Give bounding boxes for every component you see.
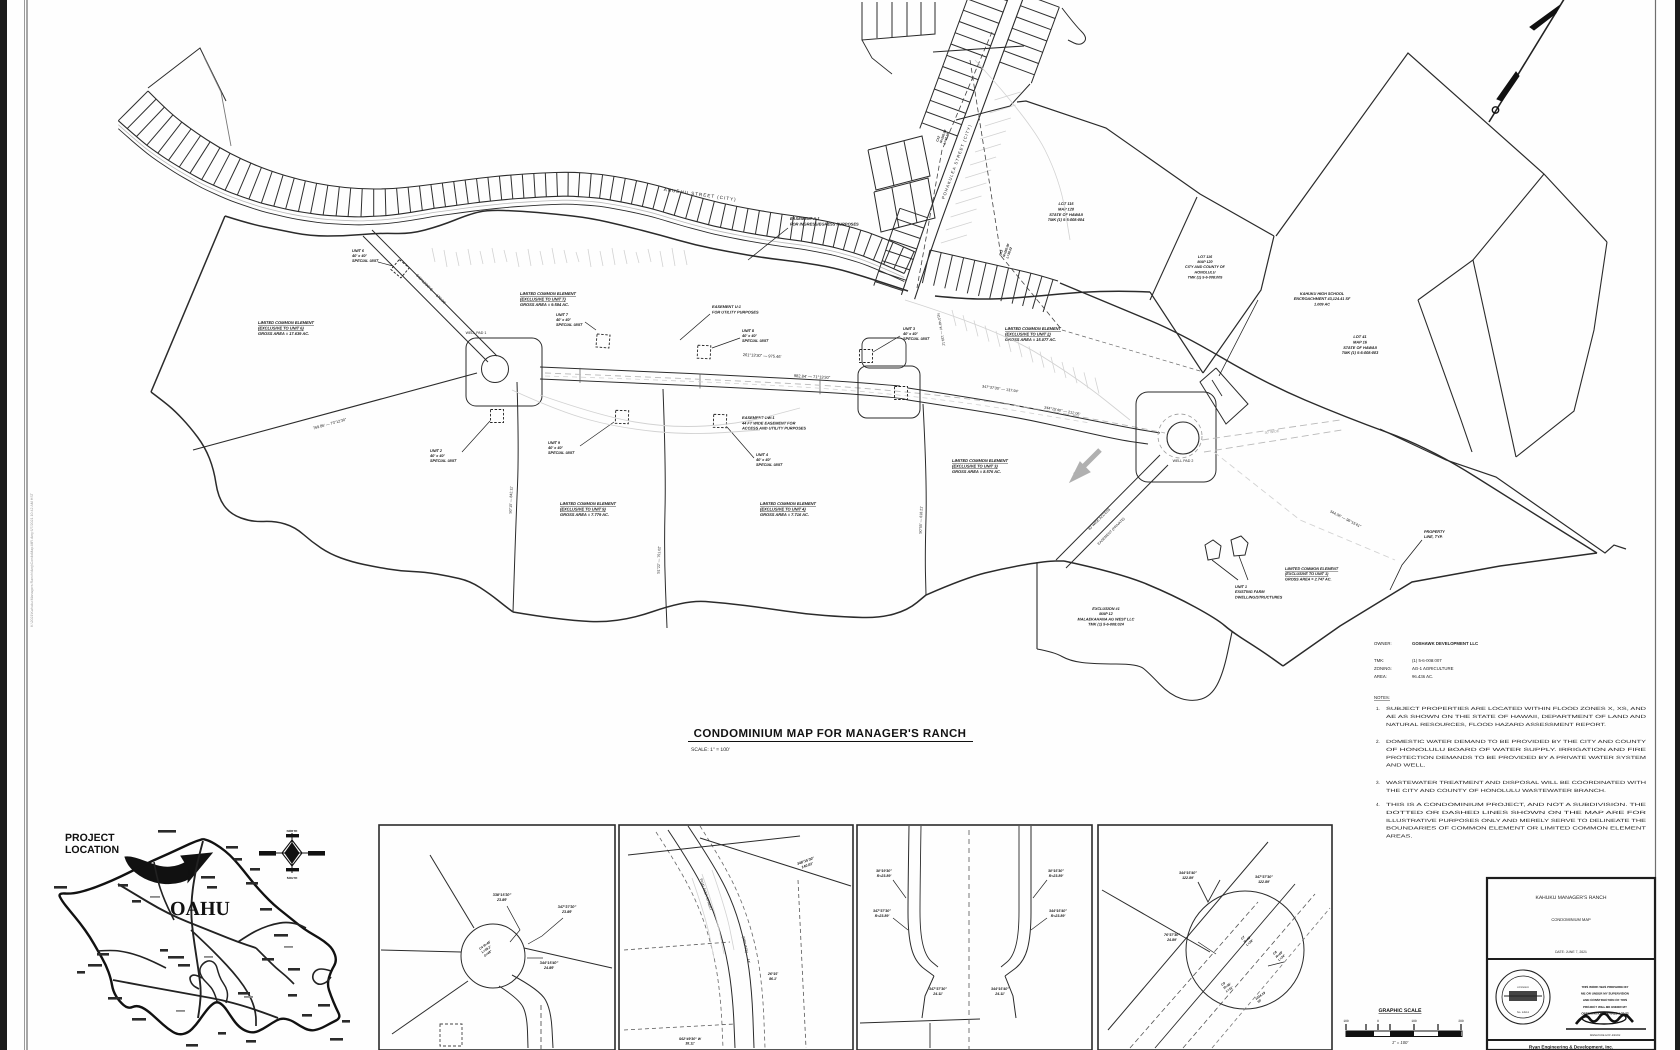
svg-text:24.11': 24.11'	[932, 992, 943, 996]
svg-text:UNIT 6: UNIT 6	[352, 249, 365, 253]
svg-text:SPECIAL UNIT: SPECIAL UNIT	[556, 323, 583, 327]
svg-text:TMK:: TMK:	[1374, 658, 1384, 663]
svg-text:MALAEKAHANA AG WEST LLC: MALAEKAHANA AG WEST LLC	[1078, 617, 1135, 621]
svg-text:38.11': 38.11'	[685, 1042, 694, 1046]
svg-text:OAHU: OAHU	[170, 898, 230, 920]
svg-text:GROSS AREA = 2.747 AC.: GROSS AREA = 2.747 AC.	[1285, 577, 1332, 581]
svg-text:347°37'30": 347°37'30"	[873, 909, 891, 913]
svg-text:WELL PAD 1: WELL PAD 1	[466, 331, 487, 335]
svg-text:344°15'40": 344°15'40"	[1179, 871, 1197, 875]
svg-text:96.436 AC.: 96.436 AC.	[1412, 674, 1433, 679]
svg-text:40' x 40': 40' x 40'	[902, 332, 918, 336]
svg-text:KAHUKU MANAGER'S RANCH: KAHUKU MANAGER'S RANCH	[1536, 895, 1607, 901]
svg-text:SCALE: 1" = 100': SCALE: 1" = 100'	[691, 747, 730, 753]
svg-text:ME OR UNDER MY SUPERVISION: ME OR UNDER MY SUPERVISION	[1581, 992, 1629, 996]
svg-text:24.11': 24.11'	[994, 992, 1005, 996]
svg-text:122.89': 122.89'	[1182, 876, 1194, 880]
svg-text:R=23.89': R=23.89'	[1051, 914, 1066, 918]
svg-text:(EXCLUSIVE TO UNIT 2): (EXCLUSIVE TO UNIT 2)	[1005, 332, 1051, 337]
svg-text:CONDOMINIUM MAP FOR MANAGER: CONDOMINIUM MAP FOR MANAGER'S RANCH	[694, 728, 967, 740]
svg-text:LINE, TYP.: LINE, TYP.	[1424, 535, 1443, 539]
svg-text:1.009 AC: 1.009 AC	[1314, 302, 1330, 306]
svg-text:ILLUSTRATIVE PURPOSES ONLY AND: ILLUSTRATIVE PURPOSES ONLY AND MERELY SE…	[1386, 818, 1646, 823]
svg-text:338°15'30": 338°15'30"	[493, 893, 512, 897]
svg-text:MAP 120: MAP 120	[1058, 206, 1075, 211]
svg-text:CONDOMINIUM MAP: CONDOMINIUM MAP	[1551, 917, 1591, 922]
svg-text:(1) 5-6-008:007: (1) 5-6-008:007	[1412, 658, 1442, 663]
svg-text:(EXCLUSIVE TO UNIT 6): (EXCLUSIVE TO UNIT 6)	[258, 326, 304, 331]
svg-text:UNIT 4: UNIT 4	[756, 453, 769, 457]
svg-text:R=23.89': R=23.89'	[875, 914, 890, 918]
svg-text:TMK (1) 5-6-008:003: TMK (1) 5-6-008:003	[1342, 350, 1379, 355]
svg-text:100: 100	[1343, 1019, 1349, 1023]
svg-text:(EXCLUSIVE TO UNIT 4): (EXCLUSIVE TO UNIT 4)	[760, 507, 806, 512]
svg-text:LOCATION: LOCATION	[65, 844, 119, 856]
svg-text:344°15'40": 344°15'40"	[991, 987, 1009, 991]
svg-text:LOT 115: LOT 115	[1058, 201, 1074, 206]
svg-text:SPECIAL UNIT: SPECIAL UNIT	[756, 463, 783, 467]
svg-text:FOR UTILITY PURPOSES: FOR UTILITY PURPOSES	[712, 309, 759, 314]
svg-text:GROSS AREA = 7.779 AC.: GROSS AREA = 7.779 AC.	[560, 512, 609, 517]
svg-text:23.89': 23.89'	[561, 910, 572, 914]
svg-text:DOMESTIC WATER DEMAND TO BE PR: DOMESTIC WATER DEMAND TO BE PROVIDED BY …	[1386, 739, 1646, 744]
svg-text:SUBJECT PROPERTIES ARE LOCATED: SUBJECT PROPERTIES ARE LOCATED WITHIN FL…	[1386, 706, 1647, 711]
svg-text:347°37'30": 347°37'30"	[558, 905, 577, 909]
svg-text:GROSS AREA = 7.716 AC.: GROSS AREA = 7.716 AC.	[760, 512, 809, 517]
svg-text:30°19'30": 30°19'30"	[876, 869, 892, 873]
svg-text:LIMITED COMMON ELEMENT: LIMITED COMMON ELEMENT	[258, 320, 315, 325]
svg-text:AND WELL.: AND WELL.	[1386, 763, 1426, 768]
svg-text:344°15'40": 344°15'40"	[1049, 909, 1067, 913]
svg-text:SPECIAL UNIT: SPECIAL UNIT	[903, 337, 930, 341]
svg-text:LOT 116: LOT 116	[1198, 255, 1213, 259]
svg-text:WASTEWATER TREATMENT AND DISPO: WASTEWATER TREATMENT AND DISPOSAL WILL B…	[1386, 780, 1646, 785]
svg-text:40' x 40': 40' x 40'	[547, 446, 563, 450]
svg-text:(EXCLUSIVE TO UNIT 9): (EXCLUSIVE TO UNIT 9)	[560, 507, 606, 512]
svg-text:PROJECT WILL BE UNDER MY: PROJECT WILL BE UNDER MY	[1583, 1005, 1627, 1009]
svg-text:24.89': 24.89'	[1166, 938, 1177, 942]
svg-text:24.89': 24.89'	[543, 966, 554, 970]
svg-text:FOR INGRESS/EGRESS PURPOSES: FOR INGRESS/EGRESS PURPOSES	[790, 221, 859, 226]
svg-text:AND CONSTRUCTION OF THIS: AND CONSTRUCTION OF THIS	[1583, 998, 1627, 1002]
svg-text:UNIT 9: UNIT 9	[548, 441, 561, 445]
svg-text:LIMITED COMMON ELEMENT: LIMITED COMMON ELEMENT	[1005, 326, 1062, 331]
svg-text:PROPERTY: PROPERTY	[1424, 530, 1445, 534]
svg-text:AREA:: AREA:	[1374, 674, 1387, 679]
svg-text:Ryan Engineering & Development: Ryan Engineering & Development, Inc.	[1529, 1045, 1613, 1050]
svg-text:40' x 40': 40' x 40'	[429, 454, 445, 458]
svg-text:1.: 1.	[1376, 706, 1380, 711]
svg-text:SPECIAL UNIT: SPECIAL UNIT	[430, 459, 457, 463]
svg-text:EASEMENT U-1: EASEMENT U-1	[712, 304, 741, 309]
svg-text:ENCROACHMENT 43,124.41 SF: ENCROACHMENT 43,124.41 SF	[1294, 297, 1351, 301]
svg-text:GROSS AREA = 15.077 AC.: GROSS AREA = 15.077 AC.	[1005, 337, 1056, 342]
svg-text:HONOLULU: HONOLULU	[1195, 270, 1216, 274]
svg-text:AE AS SHOWN ON THE STATE OF HA: AE AS SHOWN ON THE STATE OF HAWAII, DEPA…	[1386, 714, 1647, 719]
svg-text:347°37'30": 347°37'30"	[929, 987, 947, 991]
svg-text:4.: 4.	[1376, 802, 1380, 807]
svg-text:TMK (1) 5-6-008:024: TMK (1) 5-6-008:024	[1088, 623, 1125, 627]
svg-text:76°37'30": 76°37'30"	[1164, 933, 1180, 937]
svg-text:LIMITED COMMON ELEMENT: LIMITED COMMON ELEMENT	[952, 458, 1009, 463]
svg-text:THE CITY AND COUNTY OF HONOLUL: THE CITY AND COUNTY OF HONOLULU WASTEWAT…	[1386, 788, 1606, 793]
svg-text:DOTTED OR DASHED LINES SHOWN O: DOTTED OR DASHED LINES SHOWN ON THE MAP …	[1386, 810, 1647, 815]
svg-text:2.: 2.	[1376, 739, 1380, 744]
svg-text:AREAS.: AREAS.	[1386, 834, 1412, 839]
svg-text:MAP 16: MAP 16	[1353, 339, 1368, 344]
svg-text:TMK (1) 5-6-008:005: TMK (1) 5-6-008:005	[1188, 275, 1224, 279]
svg-text:86.1': 86.1'	[769, 977, 777, 981]
svg-text:GROSS AREA = 9.584 AC.: GROSS AREA = 9.584 AC.	[520, 302, 569, 307]
svg-text:LICENSED: LICENSED	[1517, 986, 1529, 989]
svg-text:THIS IS A CONDOMINIUM PROJECT,: THIS IS A CONDOMINIUM PROJECT, AND NOT A…	[1386, 802, 1646, 807]
svg-text:(EXCLUSIVE TO UNIT 7): (EXCLUSIVE TO UNIT 7)	[520, 297, 566, 302]
svg-text:26°15': 26°15'	[767, 972, 778, 976]
svg-text:LOT 41: LOT 41	[1353, 334, 1366, 339]
svg-text:K:\2021\Kahuku Managers Ranch\: K:\2021\Kahuku Managers Ranch\dwg\CondoM…	[30, 492, 34, 627]
svg-text:40' x 40': 40' x 40'	[755, 458, 771, 462]
svg-text:BOUNDARIES OF COMMON ELEMENT O: BOUNDARIES OF COMMON ELEMENT OR LIMITED …	[1386, 826, 1646, 831]
svg-text:347°37'30": 347°37'30"	[1255, 875, 1273, 879]
svg-text:344°15'40": 344°15'40"	[540, 961, 559, 965]
svg-text:No. 14513: No. 14513	[1517, 1011, 1530, 1014]
svg-text:UNIT 1: UNIT 1	[1235, 585, 1247, 589]
svg-text:23.89': 23.89'	[496, 898, 507, 902]
svg-text:200: 200	[1458, 1019, 1464, 1023]
svg-text:CITY AND COUNTY OF: CITY AND COUNTY OF	[1185, 265, 1226, 269]
svg-text:3.: 3.	[1376, 780, 1380, 785]
svg-text:S62°49'30" W: S62°49'30" W	[679, 1037, 702, 1041]
svg-text:(EXCLUSIVE TO UNIT 1): (EXCLUSIVE TO UNIT 1)	[1285, 572, 1329, 576]
svg-text:EXCLUSION #1: EXCLUSION #1	[1092, 607, 1119, 611]
svg-text:DWELLING/STRUCTURES: DWELLING/STRUCTURES	[1235, 595, 1283, 599]
svg-text:GROSS AREA = 17.639 AC.: GROSS AREA = 17.639 AC.	[258, 331, 309, 336]
svg-text:SPECIAL UNIT: SPECIAL UNIT	[352, 259, 379, 263]
svg-text:PROTECTION DEMANDS TO BE PROVI: PROTECTION DEMANDS TO BE PROVIDED BY A P…	[1386, 755, 1646, 760]
svg-text:WELL PAD 2: WELL PAD 2	[1173, 459, 1194, 463]
svg-text:UNIT 3: UNIT 3	[903, 327, 916, 331]
svg-text:LIMITED COMMON ELEMENT: LIMITED COMMON ELEMENT	[760, 501, 817, 506]
svg-text:AG-1 AGRICULTURE: AG-1 AGRICULTURE	[1412, 666, 1454, 671]
svg-text:1" = 100': 1" = 100'	[1392, 1040, 1409, 1045]
svg-text:30°15'30": 30°15'30"	[1048, 869, 1064, 873]
svg-text:OWNER:: OWNER:	[1374, 641, 1392, 646]
svg-text:(EXCLUSIVE TO UNIT 3): (EXCLUSIVE TO UNIT 3)	[952, 464, 998, 469]
svg-text:NOTES:: NOTES:	[1374, 695, 1390, 700]
svg-text:40' x 40': 40' x 40'	[555, 318, 571, 322]
svg-text:GROSS AREA = 8.576 AC.: GROSS AREA = 8.576 AC.	[952, 469, 1001, 474]
svg-text:GOSHAWK DEVELOPMENT LLC: GOSHAWK DEVELOPMENT LLC	[1412, 641, 1478, 646]
svg-text:SIGNATURE EXP. 4/30/22: SIGNATURE EXP. 4/30/22	[1590, 1034, 1621, 1037]
svg-text:MAP 12: MAP 12	[1099, 612, 1113, 616]
svg-text:EXISTING FARM: EXISTING FARM	[1235, 590, 1265, 594]
svg-text:GRAPHIC SCALE: GRAPHIC SCALE	[1379, 1008, 1422, 1014]
svg-text:LIMITED COMMON ELEMENT: LIMITED COMMON ELEMENT	[520, 291, 577, 296]
svg-text:40' x 40': 40' x 40'	[351, 254, 367, 258]
svg-text:UNIT 8: UNIT 8	[742, 329, 755, 333]
svg-text:OF HONOLULU BOARD OF WATER SUP: OF HONOLULU BOARD OF WATER SUPPLY. IRRIG…	[1386, 747, 1646, 752]
svg-text:SPECIAL UNIT: SPECIAL UNIT	[548, 451, 575, 455]
svg-text:UNIT 7: UNIT 7	[556, 313, 569, 317]
svg-text:THIS WORK WAS PREPARED BY: THIS WORK WAS PREPARED BY	[1581, 985, 1628, 989]
svg-text:STATE OF HAWAII: STATE OF HAWAII	[1049, 212, 1083, 217]
svg-text:UNIT 2: UNIT 2	[430, 449, 443, 453]
svg-text:40' x 40': 40' x 40'	[741, 334, 757, 338]
svg-text:122.89': 122.89'	[1258, 880, 1270, 884]
svg-text:SPECIAL UNIT: SPECIAL UNIT	[742, 339, 769, 343]
svg-text:0: 0	[1377, 1019, 1379, 1023]
svg-text:KAHUKU HIGH SCHOOL: KAHUKU HIGH SCHOOL	[1300, 292, 1345, 296]
svg-text:100: 100	[1411, 1019, 1417, 1023]
svg-text:STATE OF HAWAII: STATE OF HAWAII	[1343, 345, 1377, 350]
svg-text:MAP 120: MAP 120	[1197, 260, 1213, 264]
svg-text:PROJECT: PROJECT	[65, 832, 115, 844]
svg-text:EASEMENT A-1: EASEMENT A-1	[790, 216, 820, 221]
svg-text:NORTH: NORTH	[287, 829, 298, 833]
svg-text:SOUTH: SOUTH	[287, 876, 298, 880]
svg-text:ACCESS AND UTILITY PURPOSES: ACCESS AND UTILITY PURPOSES	[741, 426, 806, 431]
svg-text:R=23.89': R=23.89'	[877, 874, 892, 878]
svg-text:NATURAL RESOURCES, FLOOD HAZAR: NATURAL RESOURCES, FLOOD HAZARD ASSESSME…	[1386, 722, 1606, 727]
svg-text:ZONING:: ZONING:	[1374, 666, 1392, 671]
svg-text:R=23.89': R=23.89'	[1049, 874, 1064, 878]
svg-text:LIMITED COMMON ELEMENT: LIMITED COMMON ELEMENT	[560, 501, 617, 506]
svg-text:LIMITED COMMON ELEMENT: LIMITED COMMON ELEMENT	[1285, 567, 1339, 571]
svg-text:DATE: JUNE 7, 2021: DATE: JUNE 7, 2021	[1555, 950, 1587, 954]
